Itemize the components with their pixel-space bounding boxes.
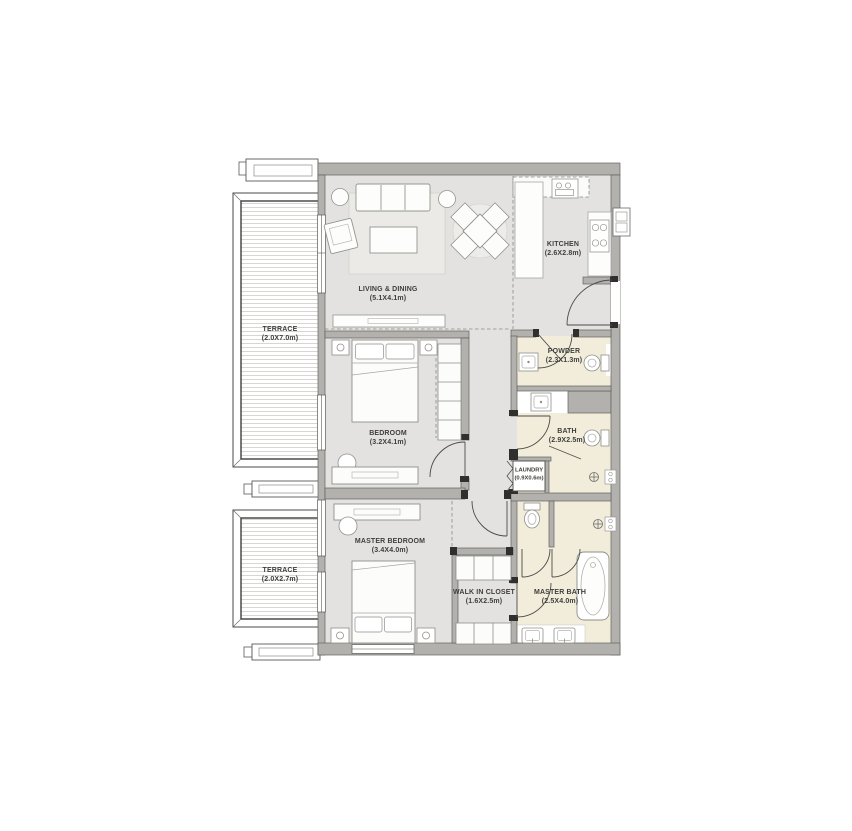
wall-powder-top-right	[574, 330, 611, 337]
ac-unit	[613, 208, 630, 236]
console-table	[333, 315, 445, 327]
shower-head-icon	[590, 473, 599, 482]
bath-toilet	[584, 430, 609, 446]
side-table-left	[332, 189, 349, 206]
floor-plan-canvas	[0, 0, 852, 831]
desk	[332, 467, 418, 484]
powder-toilet	[584, 355, 609, 371]
wall-hall-column-3	[511, 491, 517, 583]
towel-rail-icon	[605, 470, 616, 484]
towel-rail-icon	[605, 517, 616, 531]
master-toilet	[524, 503, 540, 528]
wall-exterior-top	[318, 163, 620, 175]
dining-set	[451, 203, 509, 259]
desk-chair	[339, 517, 357, 535]
room-label-bath: BATH (2.9X2.5m)	[549, 427, 586, 445]
room-label-living-dining: LIVING & DINING (5.1X4.1m)	[358, 285, 417, 303]
shaft-wall	[568, 391, 611, 413]
wall-bedroom-right	[461, 338, 469, 440]
window-master-bedroom-1	[318, 500, 326, 556]
entry-opening	[611, 281, 620, 324]
room-label-bedroom: BEDROOM (3.2X4.1m)	[369, 429, 407, 447]
wall-exterior-right	[611, 175, 620, 655]
wall-laundry-right	[545, 461, 549, 495]
sofa	[356, 184, 430, 211]
room-label-master-bath: MASTER BATH (2.5X4.0m)	[534, 588, 586, 606]
window-master-bedroom-bottom	[352, 645, 414, 654]
bed	[352, 561, 415, 643]
bathtub	[577, 552, 609, 620]
room-label-kitchen: KITCHEN (2.6X2.8m)	[545, 240, 582, 258]
room-label-terrace-top: TERRACE (2.0X7.0m)	[262, 325, 299, 343]
bed	[352, 340, 418, 422]
kitchen-counter-left	[515, 182, 543, 278]
wall-bedroom-top	[325, 331, 469, 338]
wall-corridor	[325, 488, 465, 499]
wall-hall-column-1	[511, 336, 517, 416]
floor-plan: TERRACE (2.0X7.0m) LIVING & DINING (5.1X…	[0, 0, 852, 831]
room-label-walk-in-closet: WALK IN CLOSET (1.6X2.5m)	[453, 588, 515, 606]
room-label-terrace-bottom: TERRACE (2.0X2.7m)	[262, 566, 299, 584]
exterior-ledge-middle	[244, 481, 320, 497]
wall-powder-bottom	[517, 386, 611, 391]
shower-head-icon	[594, 520, 603, 529]
room-label-powder: POWDER (2.3X1.3m)	[546, 347, 583, 365]
wardrobe	[438, 344, 461, 440]
wall-master-bath-partition	[549, 501, 554, 547]
side-table-right	[439, 191, 456, 208]
coffee-table	[370, 227, 417, 253]
exterior-ledge-bottom	[244, 644, 320, 660]
bath-sink	[531, 393, 551, 411]
wall-closet-top	[452, 548, 513, 555]
kitchen-sink	[552, 179, 578, 198]
room-label-laundry: LAUNDRY (0.9X0.6m)	[515, 467, 544, 482]
window-bedroom	[318, 395, 326, 450]
window-master-bedroom-2	[318, 572, 326, 612]
wall-bath-bottom	[511, 493, 611, 501]
exterior-ledge-top	[239, 159, 318, 181]
powder-sink	[519, 353, 538, 371]
stove	[590, 220, 609, 252]
room-label-master-bedroom: MASTER BEDROOM (3.4X4.0m)	[355, 537, 425, 555]
